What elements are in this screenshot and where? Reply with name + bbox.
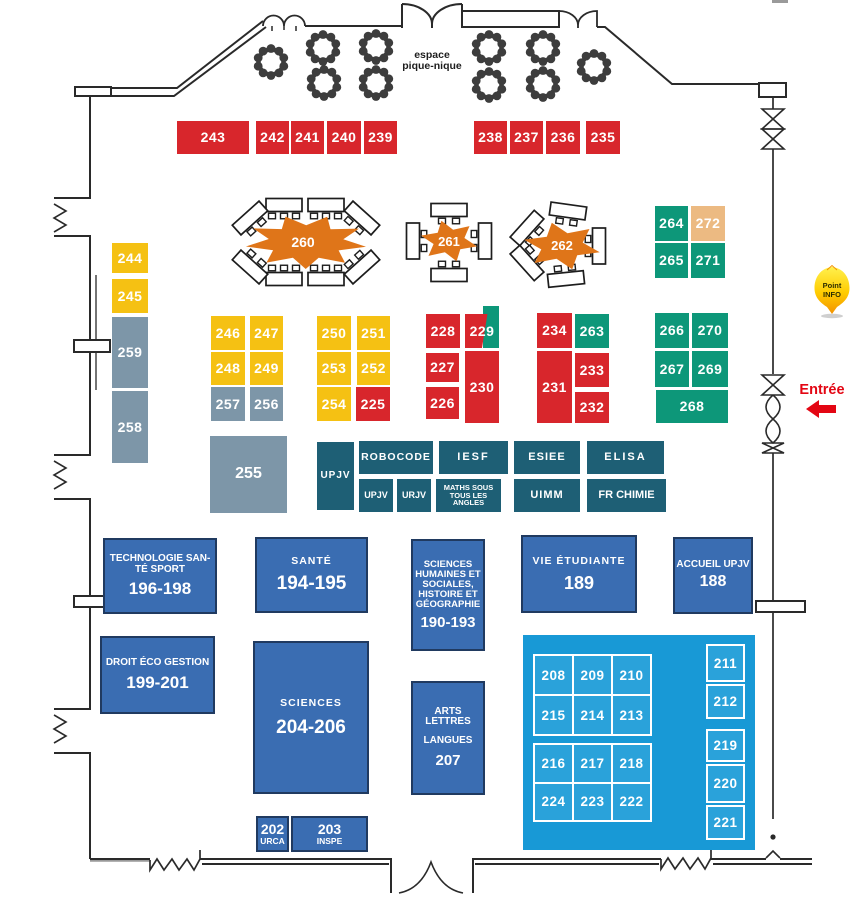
svg-text:261: 261	[438, 234, 460, 249]
svg-text:Point: Point	[823, 281, 842, 290]
svg-text:260: 260	[291, 234, 315, 250]
svg-text:Entrée: Entrée	[799, 382, 844, 398]
svg-text:INFO: INFO	[823, 290, 841, 299]
svg-text:pique-nique: pique-nique	[402, 60, 462, 72]
svg-text:262: 262	[551, 238, 573, 253]
